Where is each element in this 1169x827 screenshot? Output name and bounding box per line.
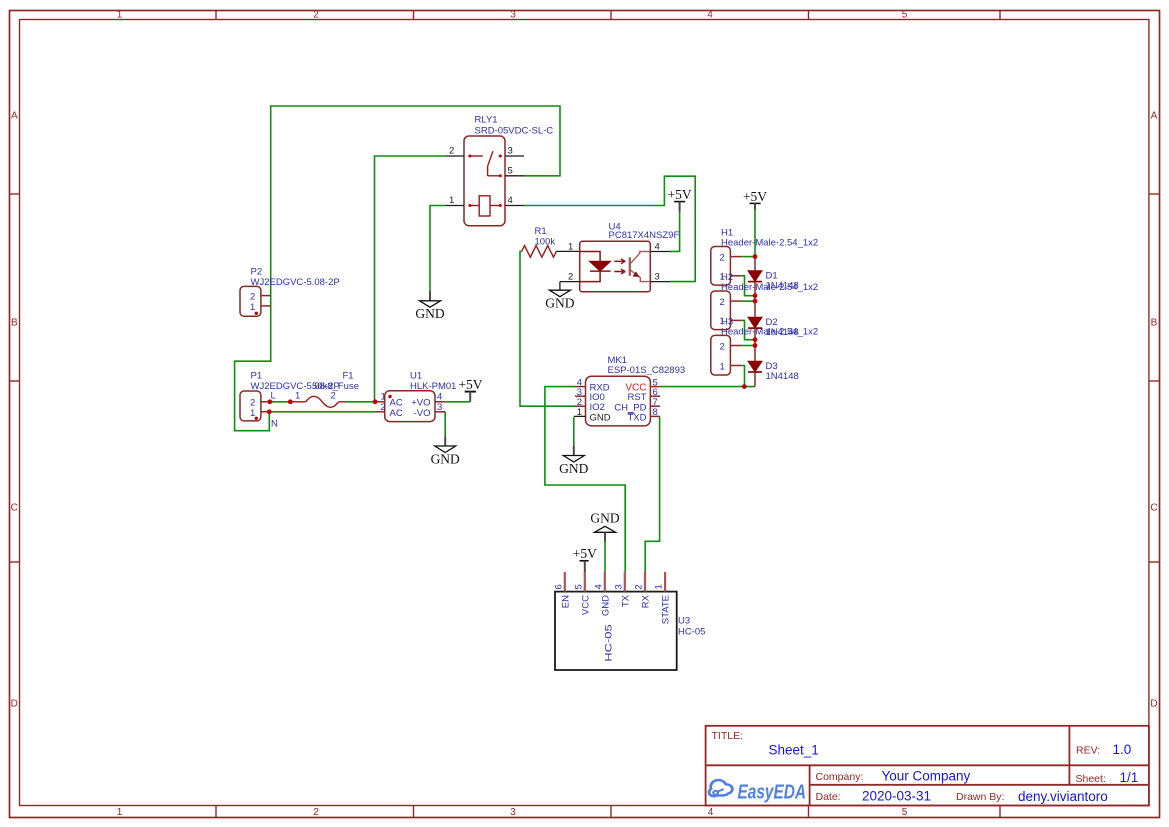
- svg-text:1: 1: [250, 408, 255, 419]
- svg-text:1: 1: [117, 10, 123, 21]
- svg-text:B: B: [11, 318, 18, 329]
- svg-text:Header-Male-2.54_1x2: Header-Male-2.54_1x2: [721, 238, 818, 249]
- svg-text:3: 3: [510, 10, 516, 21]
- svg-text:2: 2: [634, 584, 645, 589]
- svg-text:D: D: [11, 699, 18, 710]
- svg-text:STATE: STATE: [661, 595, 672, 624]
- svg-text:+5V: +5V: [458, 377, 482, 392]
- svg-text:+5V: +5V: [743, 189, 767, 204]
- svg-text:2020-03-31: 2020-03-31: [862, 789, 931, 804]
- svg-text:F1: F1: [343, 371, 354, 382]
- svg-text:ESP-01S_C82893: ESP-01S_C82893: [608, 365, 686, 376]
- svg-text:5: 5: [902, 807, 908, 818]
- svg-text:4: 4: [655, 241, 660, 252]
- svg-text:N: N: [271, 419, 278, 430]
- svg-text:A: A: [11, 111, 18, 122]
- svg-text:1N4148: 1N4148: [766, 281, 799, 292]
- svg-text:RX: RX: [641, 594, 652, 608]
- svg-text:3: 3: [613, 584, 624, 589]
- svg-text:WJ2EDGVC-5.08-2P: WJ2EDGVC-5.08-2P: [251, 277, 340, 288]
- svg-text:HLK-PM01: HLK-PM01: [410, 381, 456, 392]
- svg-text:GND: GND: [590, 511, 619, 526]
- svg-text:2: 2: [313, 807, 319, 818]
- svg-text:GND: GND: [600, 595, 611, 616]
- svg-text:6: 6: [553, 584, 564, 589]
- svg-text:4: 4: [708, 807, 714, 818]
- svg-text:VCC: VCC: [580, 595, 591, 615]
- svg-text:U1: U1: [410, 371, 422, 382]
- svg-text:3: 3: [510, 807, 516, 818]
- svg-text:2: 2: [250, 292, 255, 303]
- svg-text:1: 1: [577, 407, 582, 418]
- svg-text:GND: GND: [415, 306, 444, 321]
- svg-text:2: 2: [720, 341, 725, 352]
- svg-text:TXD: TXD: [628, 412, 647, 423]
- svg-text:-VO: -VO: [414, 408, 431, 419]
- svg-text:1: 1: [720, 361, 725, 372]
- svg-text:GND: GND: [545, 296, 574, 311]
- svg-text:3: 3: [655, 272, 660, 283]
- svg-text:TX: TX: [620, 594, 631, 607]
- svg-text:4: 4: [707, 10, 713, 21]
- svg-text:1: 1: [568, 241, 573, 252]
- svg-text:2: 2: [449, 146, 454, 157]
- svg-text:HC-05: HC-05: [604, 624, 615, 661]
- svg-text:GND: GND: [431, 452, 460, 467]
- svg-text:REV:: REV:: [1076, 745, 1100, 757]
- svg-text:1N4148: 1N4148: [766, 371, 799, 382]
- svg-text:2: 2: [381, 402, 386, 413]
- svg-text:EasyEDA: EasyEDA: [738, 782, 807, 804]
- svg-text:3: 3: [437, 402, 442, 413]
- svg-text:D: D: [1150, 699, 1157, 710]
- svg-text:5: 5: [573, 584, 584, 589]
- svg-text:AC: AC: [390, 408, 403, 419]
- svg-text:5: 5: [508, 165, 513, 176]
- svg-text:GND: GND: [590, 412, 611, 423]
- svg-text:+5V: +5V: [668, 187, 692, 202]
- svg-text:1: 1: [117, 807, 123, 818]
- svg-text:Your Company: Your Company: [882, 769, 971, 784]
- svg-text:C: C: [11, 503, 18, 514]
- svg-text:4: 4: [593, 584, 604, 589]
- svg-text:GND: GND: [559, 461, 588, 476]
- svg-text:RLY1: RLY1: [475, 115, 498, 126]
- svg-text:Sheet:: Sheet:: [1076, 773, 1106, 785]
- svg-text:deny.viviantoro: deny.viviantoro: [1018, 789, 1108, 804]
- svg-text:2: 2: [720, 252, 725, 263]
- svg-text:HC-05: HC-05: [678, 627, 705, 638]
- svg-text:EN: EN: [560, 595, 571, 608]
- svg-text:1/1: 1/1: [1120, 770, 1139, 785]
- svg-text:Drawn By:: Drawn By:: [956, 791, 1004, 803]
- svg-text:B: B: [1151, 318, 1158, 329]
- svg-text:1: 1: [295, 391, 300, 402]
- svg-text:U3: U3: [678, 616, 690, 627]
- svg-text:2: 2: [568, 272, 573, 283]
- svg-text:5: 5: [902, 10, 908, 21]
- svg-text:1: 1: [654, 584, 665, 589]
- svg-text:4: 4: [508, 195, 513, 206]
- svg-text:PC817X4NSZ9F: PC817X4NSZ9F: [609, 230, 680, 241]
- svg-text:Date:: Date:: [816, 791, 841, 803]
- svg-text:8: 8: [653, 407, 658, 418]
- svg-text:+5V: +5V: [573, 546, 597, 561]
- svg-text:Sheet_1: Sheet_1: [769, 743, 819, 758]
- svg-text:C: C: [1150, 503, 1157, 514]
- svg-text:TITLE:: TITLE:: [712, 730, 744, 742]
- svg-text:SRD-05VDC-SL-C: SRD-05VDC-SL-C: [475, 126, 554, 137]
- svg-text:2: 2: [720, 297, 725, 308]
- svg-text:100k: 100k: [535, 237, 556, 248]
- svg-text:R1: R1: [535, 226, 547, 237]
- svg-text:P2: P2: [251, 267, 263, 278]
- svg-text:1: 1: [449, 195, 454, 206]
- svg-text:P1: P1: [251, 371, 263, 382]
- svg-text:1.0: 1.0: [1113, 742, 1132, 757]
- svg-text:3: 3: [508, 146, 513, 157]
- svg-text:1: 1: [250, 302, 255, 313]
- svg-text:A: A: [1151, 111, 1158, 122]
- svg-text:2: 2: [331, 391, 336, 402]
- svg-text:1N4148: 1N4148: [766, 327, 799, 338]
- svg-text:Company:: Company:: [816, 771, 864, 783]
- svg-text:2: 2: [313, 10, 319, 21]
